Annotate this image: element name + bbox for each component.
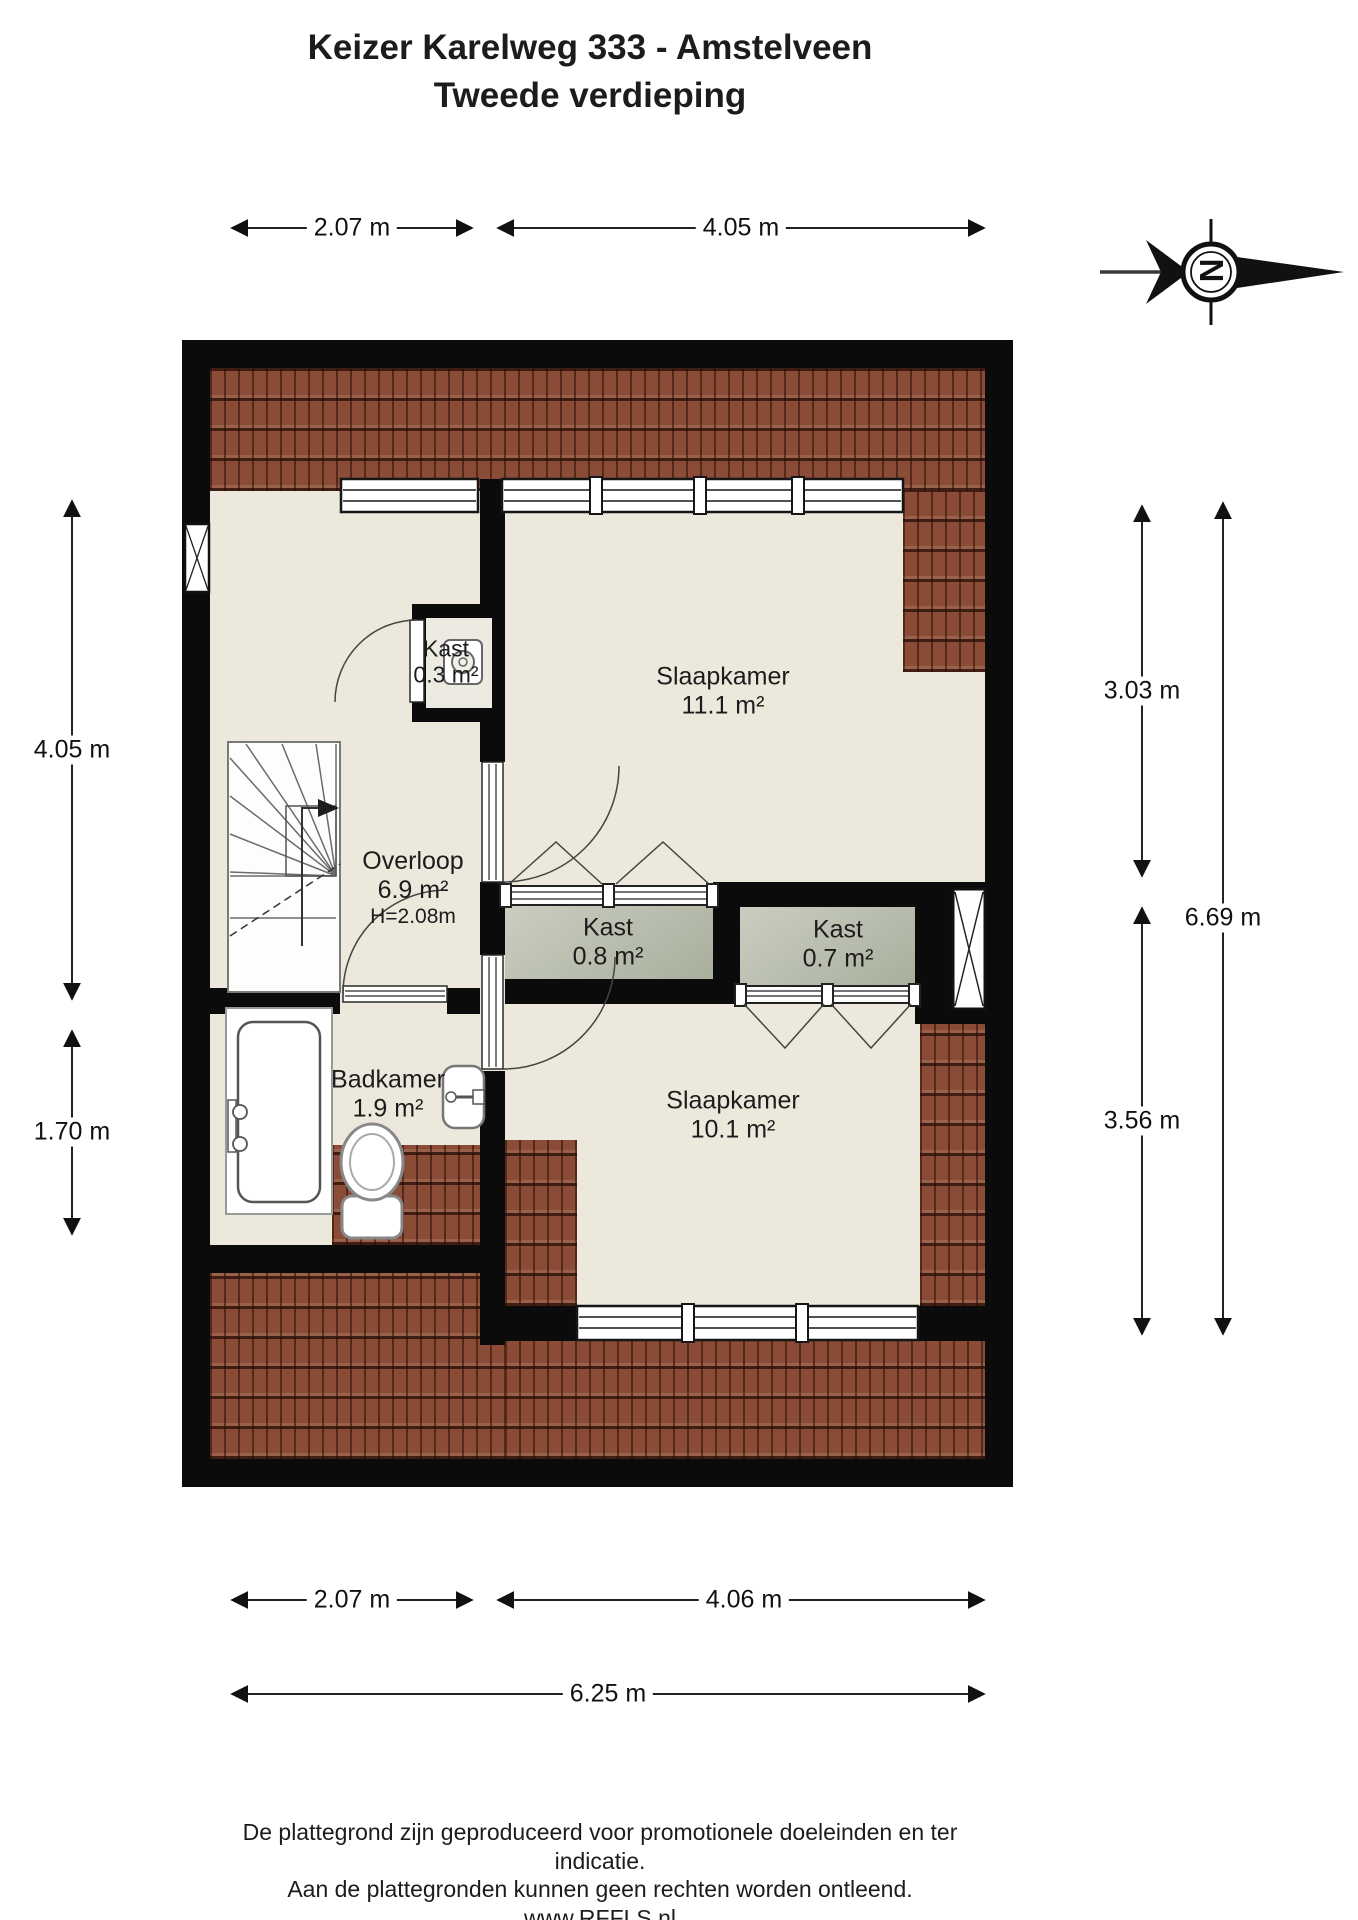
wall-closet-divider bbox=[713, 907, 740, 1004]
footer-website: www.RFFLS.nl bbox=[221, 1904, 979, 1920]
wall-closet-07-right bbox=[915, 882, 953, 1010]
footer-line1: De plattegrond zijn geproduceerd voor pr… bbox=[221, 1818, 979, 1875]
compass-north-letter: N bbox=[1192, 259, 1230, 283]
roof-left-strip bbox=[505, 1140, 577, 1306]
wall-south-window-left bbox=[505, 1306, 577, 1341]
roof-north bbox=[210, 368, 985, 491]
room-label-slaapkamer-noord: Slaapkamer 11.1 m² bbox=[656, 662, 789, 720]
dim-top-right: 4.05 m bbox=[696, 214, 786, 243]
room-label-kast-oost: Kast 0.7 m² bbox=[803, 915, 874, 973]
title-address: Keizer Karelweg 333 - Amstelveen bbox=[308, 24, 873, 72]
room-label-kast-midden: Kast 0.8 m² bbox=[573, 913, 644, 971]
room-label-kast-cv: Kast 0.3 m² bbox=[413, 636, 478, 689]
wall-middle-mid bbox=[480, 882, 505, 955]
dim-bottom-left: 2.07 m bbox=[307, 1586, 397, 1615]
roof-east-upper bbox=[903, 491, 985, 672]
roof-south bbox=[505, 1341, 985, 1459]
outer-wall-bottom bbox=[182, 1459, 1013, 1487]
room-label-slaapkamer-zuid: Slaapkamer 10.1 m² bbox=[666, 1086, 799, 1144]
room-label-badkamer: Badkamer 1.9 m² bbox=[331, 1065, 445, 1123]
room-label-overloop: Overloop 6.9 m² H=2.08m bbox=[362, 847, 463, 929]
page-title: Keizer Karelweg 333 - Amstelveen Tweede … bbox=[308, 24, 873, 120]
wall-bath-bottom bbox=[182, 1245, 505, 1273]
floorplan-page: Keizer Karelweg 333 - Amstelveen Tweede … bbox=[0, 0, 1358, 1920]
footer-disclaimer: De plattegrond zijn geproduceerd voor pr… bbox=[221, 1818, 979, 1920]
outer-wall-right bbox=[985, 340, 1013, 1487]
footer-line2: Aan de plattegronden kunnen geen rechten… bbox=[221, 1875, 979, 1904]
dim-right-top: 3.03 m bbox=[1097, 677, 1187, 706]
outer-wall-left bbox=[182, 340, 210, 1487]
outer-wall-top bbox=[182, 340, 1013, 368]
dim-left-bottom: 1.70 m bbox=[27, 1118, 117, 1147]
dim-right-bottom: 3.56 m bbox=[1097, 1107, 1187, 1136]
dim-bottom-total: 6.25 m bbox=[563, 1680, 653, 1709]
roof-bathroom bbox=[332, 1145, 480, 1245]
wall-bath-top-right bbox=[447, 988, 480, 1014]
roof-east-lower bbox=[920, 1024, 985, 1306]
wall-below-shaft bbox=[915, 1010, 985, 1024]
wall-south-window-right bbox=[918, 1306, 985, 1341]
dim-bottom-right: 4.06 m bbox=[699, 1586, 789, 1615]
wall-middle-lower bbox=[480, 1071, 505, 1345]
wall-bath-top-left bbox=[210, 988, 340, 1014]
dim-top-left: 2.07 m bbox=[307, 214, 397, 243]
roof-southwest bbox=[210, 1273, 505, 1459]
dim-right-total: 6.69 m bbox=[1178, 904, 1268, 933]
wall-closet-08-bottom bbox=[505, 979, 740, 1004]
title-floor: Tweede verdieping bbox=[308, 72, 873, 120]
dim-left-top: 4.05 m bbox=[27, 736, 117, 765]
